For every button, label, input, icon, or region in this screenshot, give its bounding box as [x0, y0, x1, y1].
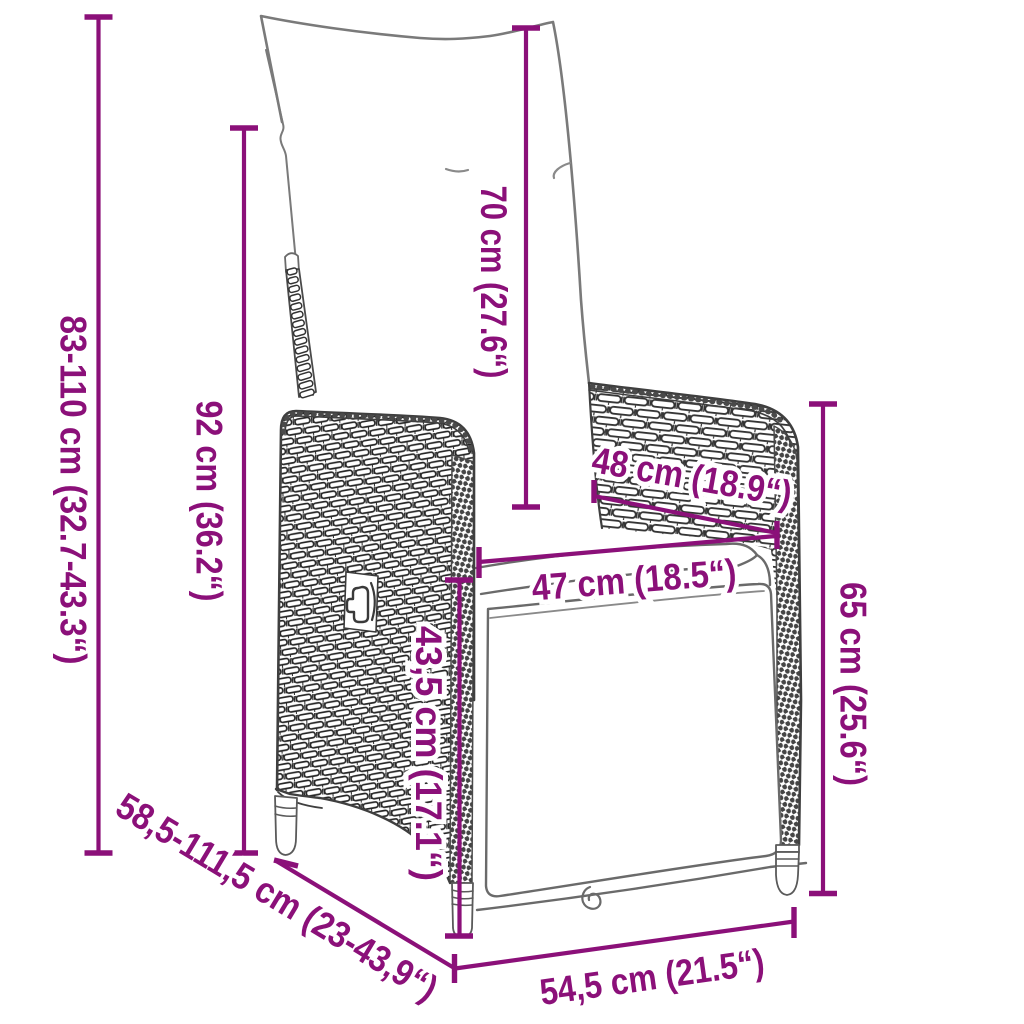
- svg-text:92 cm (36.2“): 92 cm (36.2“): [189, 401, 230, 602]
- svg-text:83-110 cm (32.7-43.3“): 83-110 cm (32.7-43.3“): [53, 316, 94, 665]
- svg-text:65 cm (25.6“): 65 cm (25.6“): [833, 582, 874, 786]
- svg-text:70 cm (27.6“): 70 cm (27.6“): [473, 186, 514, 379]
- svg-text:43,5 cm (17.1“): 43,5 cm (17.1“): [408, 626, 449, 881]
